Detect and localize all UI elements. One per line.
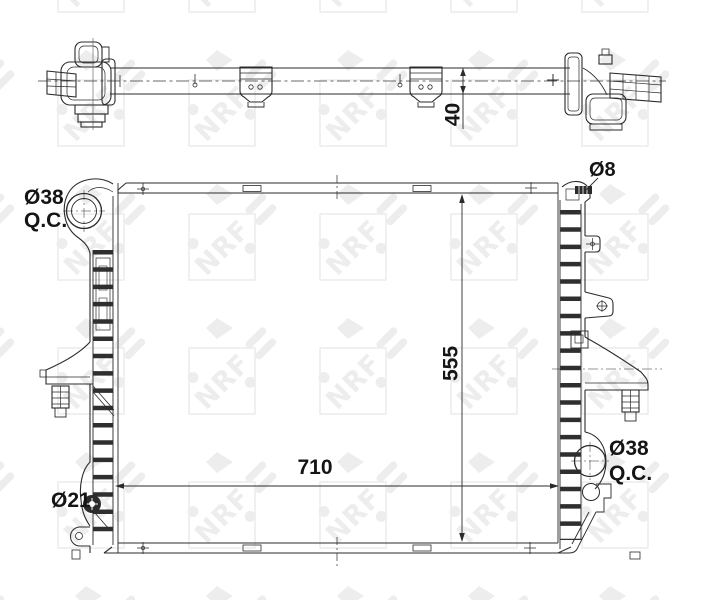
port-label-o8: Ø8 — [589, 159, 616, 182]
port-label-38-top-left-line1: Ø38 — [24, 186, 67, 209]
dimension-label-40: 40 — [442, 95, 465, 135]
port-label-38-qc-top-left: Ø38 Q.C. — [24, 186, 67, 232]
port-label-38-bottom-right-line2: Q.C. — [609, 461, 652, 486]
port-label-38-qc-bottom-right: Ø38 Q.C. — [609, 436, 652, 486]
port-label-38-top-left-line2: Q.C. — [24, 209, 67, 232]
dimension-label-710: 710 — [280, 456, 350, 479]
dimension-label-555: 555 — [440, 334, 463, 394]
radiator-technical-drawing: NRF — [0, 0, 701, 600]
drawing-line-art: NRF — [0, 0, 701, 600]
port-label-38-bottom-right-line1: Ø38 — [609, 436, 652, 461]
port-label-o21: Ø21 — [51, 489, 91, 512]
